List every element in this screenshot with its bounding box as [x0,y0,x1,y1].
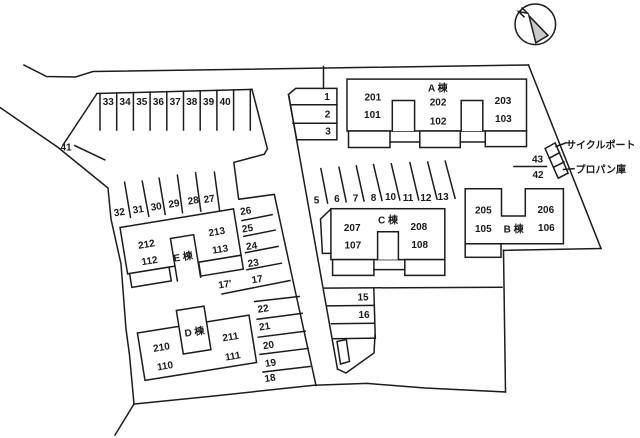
svg-text:38: 38 [186,97,198,108]
svg-text:30: 30 [150,201,163,214]
svg-text:1: 1 [324,92,330,103]
svg-text:13: 13 [438,192,450,203]
svg-text:41: 41 [60,143,72,154]
svg-text:32: 32 [113,207,126,220]
svg-text:プロパン庫: プロパン庫 [576,163,627,176]
svg-text:33: 33 [103,97,115,108]
svg-text:106: 106 [538,223,555,234]
svg-text:207: 207 [344,223,361,234]
svg-text:16: 16 [358,310,370,321]
svg-text:27: 27 [203,193,216,206]
svg-text:17: 17 [251,274,264,287]
svg-text:105: 105 [475,224,492,235]
svg-text:101: 101 [364,110,381,121]
svg-text:11: 11 [403,193,414,204]
svg-text:サイクルポート: サイクルポート [566,138,636,151]
svg-text:3: 3 [325,127,331,138]
svg-text:A 棟: A 棟 [428,82,449,95]
svg-text:43: 43 [532,155,544,166]
svg-text:37: 37 [170,97,182,108]
svg-text:201: 201 [364,93,381,104]
svg-text:5: 5 [314,195,320,206]
svg-text:22: 22 [257,303,270,316]
svg-text:28: 28 [187,195,200,208]
svg-text:202: 202 [430,97,447,108]
svg-text:203: 203 [495,96,512,107]
svg-text:6: 6 [334,194,340,205]
svg-text:35: 35 [136,97,148,108]
svg-text:17': 17' [218,279,233,292]
svg-text:208: 208 [411,222,428,233]
svg-text:103: 103 [495,114,512,125]
svg-text:107: 107 [344,241,361,252]
svg-text:B 棟: B 棟 [504,223,525,236]
svg-text:12: 12 [420,193,432,204]
svg-text:24: 24 [245,240,258,253]
svg-text:10: 10 [385,192,397,203]
svg-text:21: 21 [258,321,271,334]
svg-text:18: 18 [264,372,277,385]
svg-text:20: 20 [262,340,275,353]
svg-text:206: 206 [537,205,554,216]
svg-text:108: 108 [411,240,428,251]
svg-text:40: 40 [220,97,232,108]
svg-text:15: 15 [357,292,369,303]
svg-text:36: 36 [153,97,165,108]
svg-text:42: 42 [532,170,544,181]
svg-text:23: 23 [247,257,260,270]
svg-text:25: 25 [241,223,254,236]
svg-text:19: 19 [264,357,277,370]
svg-text:C 棟: C 棟 [378,214,399,227]
svg-text:39: 39 [203,97,215,108]
svg-text:26: 26 [240,205,253,218]
svg-text:2: 2 [325,110,331,121]
svg-text:8: 8 [371,193,377,204]
svg-text:29: 29 [168,198,181,211]
svg-text:31: 31 [132,204,145,217]
svg-text:34: 34 [120,97,132,108]
svg-text:7: 7 [353,193,359,204]
svg-text:205: 205 [475,206,492,217]
svg-text:102: 102 [430,117,447,128]
